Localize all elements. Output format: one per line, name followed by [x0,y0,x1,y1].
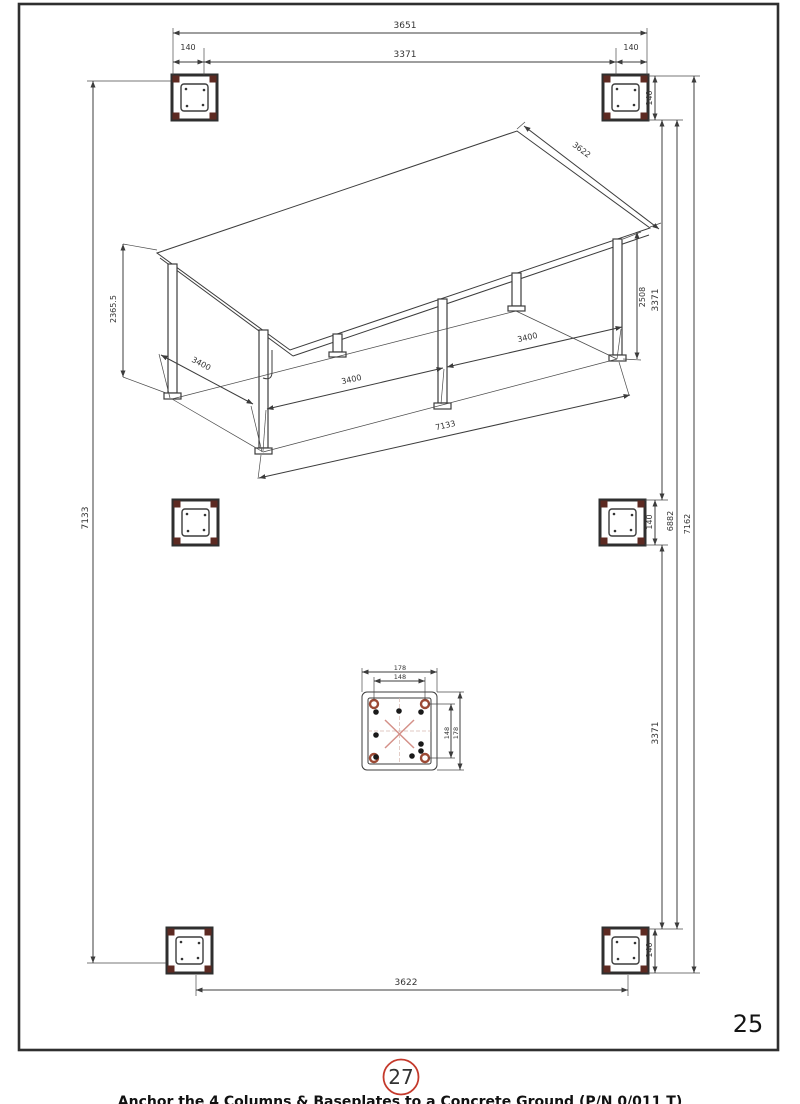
step-badge-number: 27 [388,1065,413,1089]
dim-right-bottom-offset: 140 [645,942,654,957]
anchor-plan-drawing: 3651 3371 140 140 140 3371 140 6882 7162 [0,0,800,1104]
dim-bottom-span: 3622 [395,978,418,988]
plate-inner-width-label: 148 [394,673,406,681]
dim-right-top-offset: 140 [645,90,654,105]
dim-top-inner: 3371 [394,50,417,60]
drawing-frame [19,4,778,1050]
dim-right-inner-total: 6882 [666,511,675,531]
plate-outer-height-label: 178 [452,727,460,739]
dim-top-overall: 3651 [394,21,417,31]
page-number: 25 [733,1010,764,1038]
dim-right-lower-span: 3371 [651,722,661,745]
dim-top-left-offset: 140 [180,43,195,52]
dim-top-right-offset: 140 [623,43,638,52]
plate-inner-height-label: 148 [443,727,451,739]
footer-caption: Anchor the 4 Columns & Baseplates to a C… [0,1094,800,1104]
dim-right-mid-offset: 140 [645,514,654,529]
dim-right-upper-span: 3371 [651,289,661,312]
dim-left-total: 7133 [81,507,91,530]
plate-outer-width-label: 178 [394,664,406,672]
dim-iso-height-left-label: 2365.5 [109,295,118,323]
dim-iso-height-right-label: 2508 [638,287,647,307]
dim-right-outer-total: 7162 [683,514,692,534]
anchor-hole [370,700,378,708]
manual-page: 3651 3371 140 140 140 3371 140 6882 7162 [0,0,800,1104]
